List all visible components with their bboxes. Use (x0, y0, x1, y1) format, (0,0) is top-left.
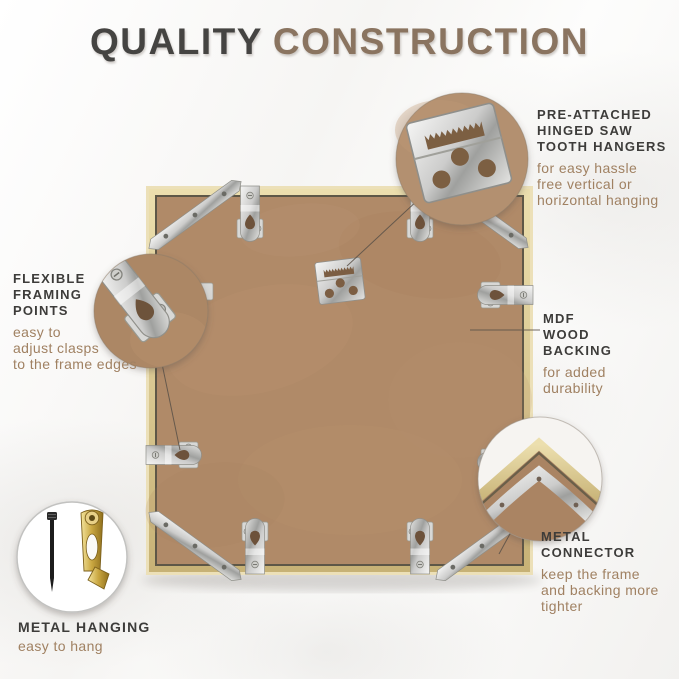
annotation-heading-line: METAL (541, 529, 659, 545)
annotation-body-line: easy to hang (18, 638, 151, 654)
framing-point-clip-left (146, 442, 202, 468)
annotation-body-line: tighter (541, 598, 659, 614)
page-title: QUALITYCONSTRUCTION (0, 22, 679, 62)
nail-and-brass-hook-icon (17, 502, 127, 612)
annotation-body-line: horizontal hanging (537, 192, 666, 208)
annotation-framing-points: FLEXIBLE FRAMING POINTS easy to adjust c… (13, 271, 137, 372)
sawtooth-hanger-icon (395, 93, 528, 225)
annotation-body-line: for added (543, 364, 612, 380)
annotation-body-line: easy to (13, 324, 137, 340)
annotation-heading-line: WOOD (543, 327, 612, 343)
annotation-body-line: adjust clasps (13, 340, 137, 356)
framing-point-clip-top-1 (237, 186, 263, 242)
annotation-heading-line: FLEXIBLE (13, 271, 137, 287)
annotation-metal-connector: METAL CONNECTOR keep the frame and backi… (541, 529, 659, 614)
annotation-body-line: and backing more (541, 582, 659, 598)
title-word-quality: QUALITY (90, 21, 263, 62)
framing-point-clip-bottom-1 (242, 519, 268, 575)
annotation-heading-line: FRAMING (13, 287, 137, 303)
frame-back (140, 186, 533, 575)
annotation-heading-line: METAL HANGING (18, 619, 151, 635)
annotation-heading-line: TOOTH HANGERS (537, 139, 666, 155)
annotation-body-line: durability (543, 380, 612, 396)
annotation-metal-hanging: METAL HANGING easy to hang (18, 619, 151, 654)
annotation-heading-line: HINGED SAW (537, 123, 666, 139)
annotation-body-line: free vertical or (537, 176, 666, 192)
annotation-heading-line: CONNECTOR (541, 545, 659, 561)
title-word-construction: CONSTRUCTION (273, 21, 589, 62)
annotation-heading-line: MDF (543, 311, 612, 327)
annotation-body-line: keep the frame (541, 566, 659, 582)
annotation-heading-line: BACKING (543, 343, 612, 359)
sawtooth-hanger (315, 257, 366, 304)
annotation-heading-line: POINTS (13, 303, 137, 319)
framing-point-clip-bottom-2 (407, 519, 433, 575)
annotation-heading-line: PRE-ATTACHED (537, 107, 666, 123)
annotation-sawtooth-hangers: PRE-ATTACHED HINGED SAW TOOTH HANGERS fo… (537, 107, 666, 208)
annotation-body-line: to the frame edges (13, 356, 137, 372)
framing-point-clip-right-1 (478, 282, 534, 308)
annotation-body-line: for easy hassle (537, 160, 666, 176)
annotation-mdf-backing: MDF WOOD BACKING for added durability (543, 311, 612, 396)
